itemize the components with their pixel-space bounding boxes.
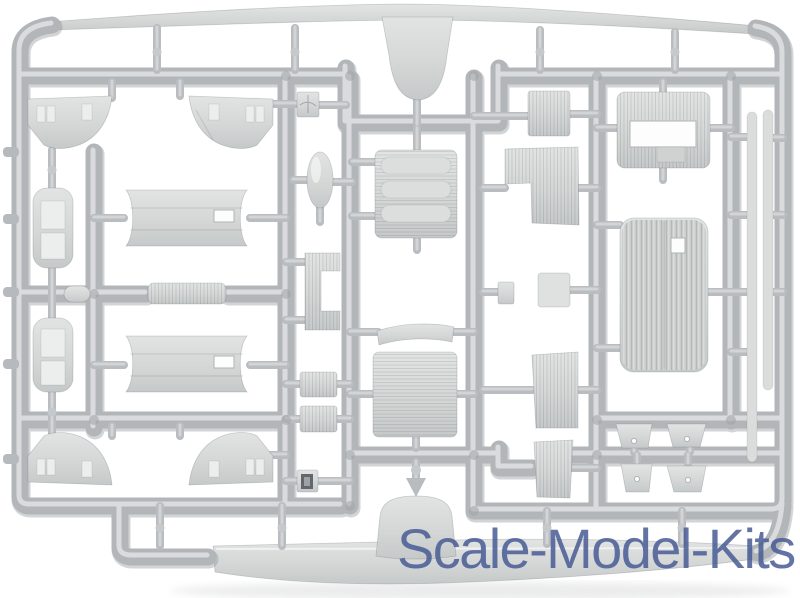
tail-fin bbox=[382, 17, 453, 100]
sprue-photo bbox=[0, 0, 800, 598]
ribbed-panel-lower bbox=[532, 352, 578, 428]
oval-wheel bbox=[307, 152, 333, 208]
fuselage-half-top bbox=[126, 190, 247, 246]
large-ribbed-plate bbox=[373, 352, 457, 437]
engine-cowling-bottom bbox=[33, 318, 73, 392]
ribbed-floor-panel bbox=[505, 147, 579, 225]
long-strut-2 bbox=[763, 110, 773, 390]
seat-trapezoid-1 bbox=[616, 424, 652, 448]
small-block bbox=[498, 282, 514, 304]
engine-cowling-top bbox=[33, 188, 73, 268]
small-ribbed-square-2 bbox=[300, 406, 337, 432]
watermark-text: Scale-Model-Kits bbox=[397, 516, 795, 581]
marked-square bbox=[297, 92, 319, 117]
seat-trapezoid-4 bbox=[667, 466, 706, 492]
wing-shadow bbox=[170, 582, 790, 598]
seat-trapezoid-2 bbox=[667, 424, 706, 447]
porthole-panel-bottom-left bbox=[28, 433, 112, 485]
seat-trapezoid-3 bbox=[621, 464, 652, 492]
louvered-panel bbox=[375, 150, 457, 238]
corrugated-fuselage-panel bbox=[620, 218, 708, 372]
curved-strip bbox=[377, 324, 454, 345]
porthole-panel-top-right bbox=[189, 96, 273, 148]
porthole-panel-bottom-right bbox=[189, 433, 273, 485]
step-bracket bbox=[305, 253, 340, 330]
ribbed-plate bbox=[528, 91, 570, 136]
small-ribbed-square-1 bbox=[300, 372, 337, 397]
small-ribbed-strip bbox=[148, 283, 226, 304]
ribbed-panel-bottom bbox=[534, 440, 573, 498]
long-strut-1 bbox=[747, 112, 757, 462]
arrow-gate bbox=[406, 478, 426, 497]
porthole-panel-top-left bbox=[28, 96, 112, 148]
photo-canvas: { "scene": { "type": "product-photo", "s… bbox=[0, 0, 800, 598]
fuselage-half-bottom bbox=[126, 336, 247, 392]
small-plate bbox=[538, 273, 570, 307]
framed-window-block bbox=[297, 470, 318, 492]
lattice-frame-plate bbox=[617, 92, 710, 168]
bullet-fairing bbox=[64, 286, 90, 302]
